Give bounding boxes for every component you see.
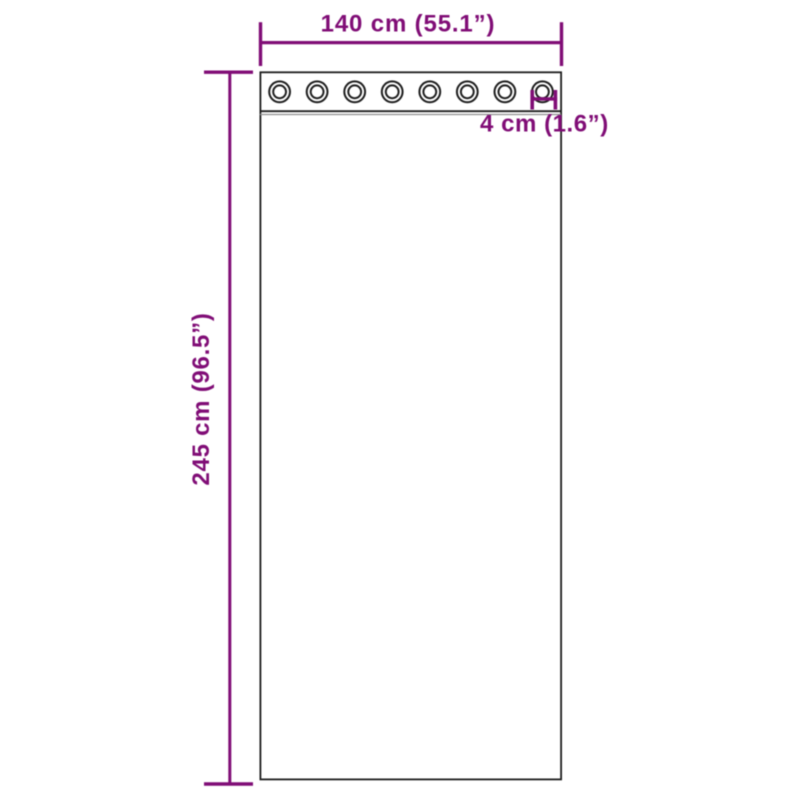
svg-text:245 cm (96.5”): 245 cm (96.5”) — [188, 312, 215, 485]
svg-text:4 cm (1.6”): 4 cm (1.6”) — [480, 110, 609, 137]
svg-text:140 cm (55.1”): 140 cm (55.1”) — [321, 11, 496, 38]
